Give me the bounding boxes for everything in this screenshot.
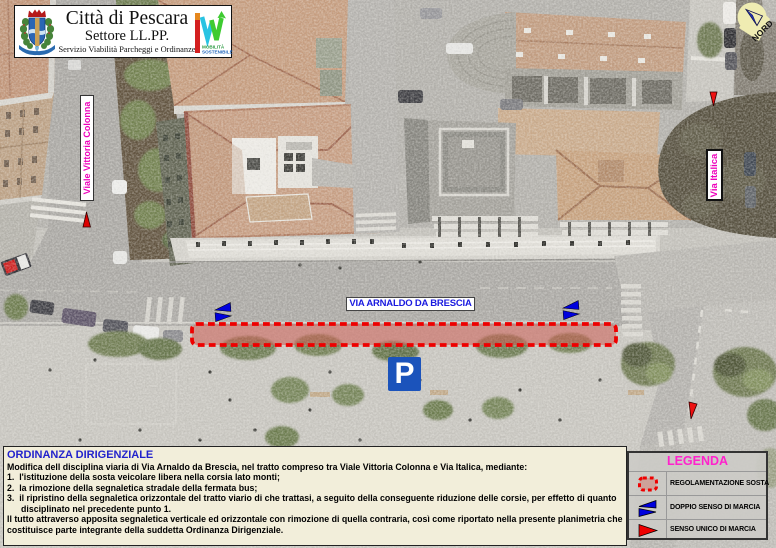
svg-text:SOSTENIBILE: SOSTENIBILE: [202, 50, 233, 55]
